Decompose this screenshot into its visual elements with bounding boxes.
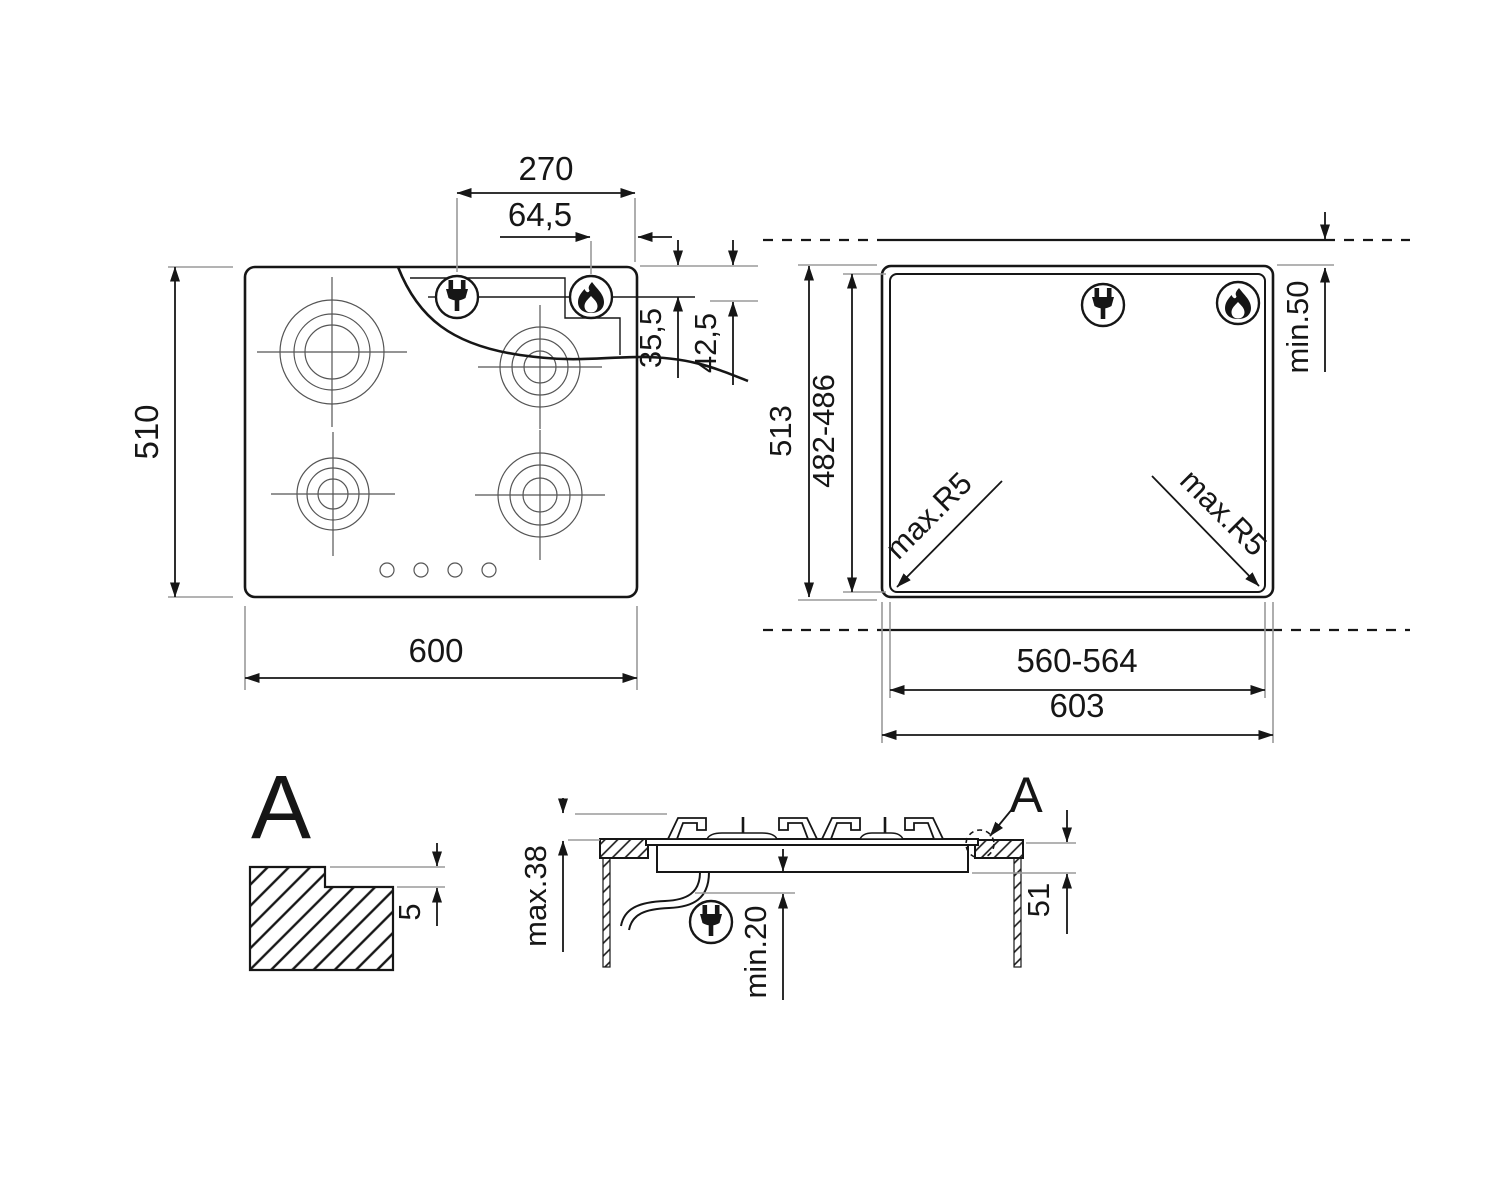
worktop-rebate-section [250, 867, 393, 970]
hob-tub [657, 845, 968, 872]
gas-flame-icon [570, 276, 612, 318]
knob-1 [380, 563, 394, 577]
gas-flame-icon [1217, 282, 1259, 324]
hob-outline [245, 267, 637, 597]
section-view: A max.38 min.20 51 [518, 767, 1076, 1000]
dim-max-height-label: max.38 [518, 845, 553, 947]
drawing-canvas: 510 600 270 64,5 35,5 [0, 0, 1500, 1200]
dim-height-510: 510 [128, 267, 233, 597]
dim-height-label: 510 [128, 404, 165, 459]
power-plug-icon [1082, 284, 1124, 326]
burner-bottom-left [271, 432, 395, 556]
corner-radius-right: max.R5 [1152, 462, 1274, 586]
dim-step-depth-label: 5 [392, 903, 427, 920]
dim-min-wall-clearance: min.50 [1277, 212, 1334, 374]
installation-drawing-sheet: 510 600 270 64,5 35,5 [0, 0, 1500, 1200]
dim-gas-depth-label: 42,5 [688, 313, 723, 373]
dim-elec-depth-label: 35,5 [633, 308, 668, 368]
corner-radius-left: max.R5 [878, 465, 1002, 587]
corner-radius-left-label: max.R5 [878, 465, 978, 565]
dim-recess-depth-label: 51 [1021, 883, 1056, 917]
cabinet-panel-right [1014, 858, 1021, 967]
dim-overall-width-label: 603 [1049, 687, 1104, 724]
dim-cutout-width-label: 560-564 [1016, 642, 1137, 679]
cutout-view: 513 482-486 min.50 max.R5 max.R5 [763, 212, 1410, 743]
power-plug-icon [690, 901, 732, 943]
dim-min-clearance-label: min.20 [738, 905, 773, 998]
knob-2 [414, 563, 428, 577]
top-view: 510 600 270 64,5 35,5 [128, 150, 758, 690]
dim-gas-offset-label: 64,5 [508, 196, 572, 233]
dim-overall-height-label: 513 [763, 405, 798, 457]
dim-gas-offset-64-5: 64,5 [500, 196, 672, 274]
control-knobs [380, 563, 496, 577]
burner-bottom-right [475, 430, 605, 560]
dim-plug-offset-label: 270 [518, 150, 573, 187]
dim-width-label: 600 [408, 632, 463, 669]
dim-min-wall-clearance-label: min.50 [1280, 280, 1315, 373]
dim-cutout-depth-482-486: 482-486 [806, 274, 886, 592]
dim-max-height: max.38 [518, 798, 667, 952]
burner-top-left [257, 277, 407, 427]
power-plug-icon [436, 276, 478, 318]
detail-a-title: A [251, 758, 311, 858]
dim-gas-depth-42-5: 42,5 [688, 240, 758, 385]
burner-top-right [478, 305, 602, 429]
worktop-section-left [600, 839, 648, 858]
knob-3 [448, 563, 462, 577]
detail-a-view: A 5 [250, 758, 445, 970]
worktop-section-right [975, 840, 1023, 858]
knob-4 [482, 563, 496, 577]
dim-recess-depth: 51 [972, 810, 1076, 934]
cabinet-panel-left [603, 858, 610, 967]
dim-width-600: 600 [245, 606, 637, 690]
section-detail-label: A [1009, 767, 1043, 823]
worktop-cutout-outline [890, 274, 1265, 592]
dim-cutout-width-560-564: 560-564 [890, 602, 1265, 698]
dim-cutout-depth-label: 482-486 [806, 374, 841, 488]
hob-footprint-outline [882, 266, 1273, 597]
